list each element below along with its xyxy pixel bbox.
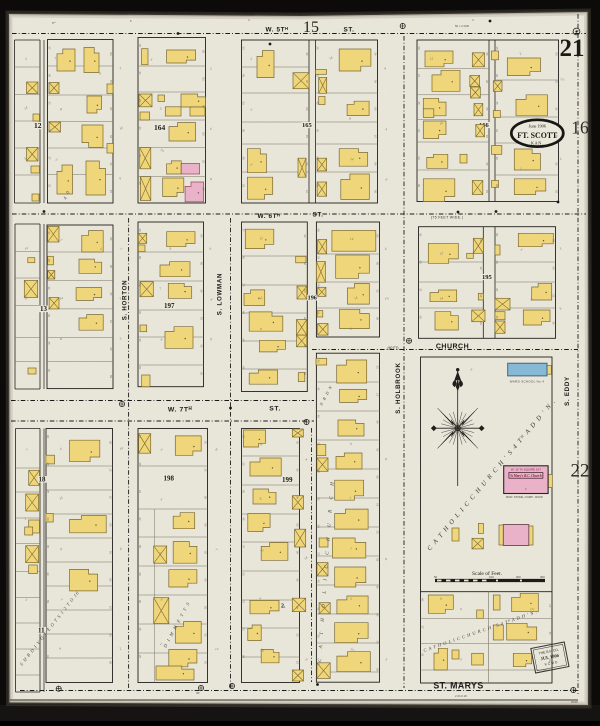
- svg-text:37: 37: [317, 552, 321, 556]
- svg-text:40: 40: [375, 317, 379, 321]
- svg-text:40: 40: [419, 233, 423, 237]
- svg-text:40: 40: [242, 311, 246, 315]
- svg-text:37: 37: [203, 468, 207, 472]
- svg-text:45: 45: [303, 317, 307, 321]
- svg-text:45: 45: [138, 627, 142, 631]
- svg-text:42: 42: [548, 631, 552, 635]
- svg-text:50: 50: [201, 132, 205, 136]
- svg-text:25: 25: [47, 369, 51, 373]
- svg-text:60: 60: [138, 600, 142, 604]
- svg-text:45: 45: [138, 99, 142, 103]
- svg-text:2046: 2046: [571, 700, 578, 704]
- svg-text:W. 16 Th SQUIRE 157: W. 16 Th SQUIRE 157: [511, 468, 542, 471]
- svg-text:40: 40: [138, 181, 142, 185]
- svg-text:50: 50: [551, 239, 555, 243]
- svg-text:60: 60: [242, 129, 246, 133]
- svg-text:14: 14: [215, 647, 219, 651]
- svg-text:25: 25: [375, 640, 379, 644]
- svg-text:60: 60: [419, 261, 423, 265]
- svg-text:40: 40: [242, 156, 246, 160]
- svg-text:50: 50: [305, 107, 309, 111]
- svg-text:40: 40: [138, 228, 142, 232]
- svg-text:40: 40: [317, 415, 321, 419]
- svg-text:37: 37: [108, 496, 112, 500]
- svg-text:ST.: ST.: [343, 26, 354, 33]
- svg-text:33: 33: [419, 288, 423, 292]
- svg-text:37: 37: [548, 604, 552, 608]
- svg-text:25: 25: [109, 135, 113, 139]
- svg-text:60: 60: [495, 233, 499, 237]
- svg-text:CHURCH: CHURCH: [436, 343, 469, 350]
- svg-text:June 1906: June 1906: [529, 124, 546, 129]
- svg-text:(60 FT): (60 FT): [387, 346, 398, 350]
- svg-text:60: 60: [48, 74, 52, 78]
- svg-text:40: 40: [479, 239, 483, 243]
- svg-text:37: 37: [375, 393, 379, 397]
- svg-text:33: 33: [417, 156, 421, 160]
- svg-text:60: 60: [242, 338, 246, 342]
- svg-text:33: 33: [48, 184, 52, 188]
- svg-text:60: 60: [138, 256, 142, 260]
- svg-text:60: 60: [419, 316, 423, 320]
- svg-text:33: 33: [109, 190, 113, 194]
- svg-text:42: 42: [485, 52, 489, 56]
- svg-text:25: 25: [554, 80, 558, 84]
- svg-text:40: 40: [201, 105, 205, 109]
- svg-text:42: 42: [138, 490, 142, 494]
- svg-text:37: 37: [138, 71, 142, 75]
- svg-text:165: 165: [302, 122, 313, 129]
- svg-text:60: 60: [203, 523, 207, 527]
- svg-text:60: 60: [495, 261, 499, 265]
- svg-text:2·R.O.W.: 2·R.O.W.: [455, 694, 468, 698]
- svg-text:42: 42: [317, 387, 321, 391]
- svg-text:1½: 1½: [530, 607, 535, 611]
- svg-text:25: 25: [201, 187, 205, 191]
- svg-text:25: 25: [242, 462, 246, 466]
- svg-text:25: 25: [316, 46, 320, 50]
- svg-text:50: 50: [108, 441, 112, 445]
- svg-text:25: 25: [479, 294, 483, 298]
- svg-text:MOD: STONE, COMP - ROOF: MOD: STONE, COMP - ROOF: [506, 495, 543, 499]
- svg-text:42: 42: [305, 135, 309, 139]
- svg-text:42: 42: [485, 107, 489, 111]
- svg-text:50: 50: [109, 375, 113, 379]
- svg-text:60: 60: [242, 435, 246, 439]
- svg-text:60: 60: [375, 613, 379, 617]
- svg-text:37: 37: [417, 74, 421, 78]
- svg-text:33: 33: [199, 317, 203, 321]
- svg-text:60: 60: [199, 262, 203, 266]
- svg-text:42: 42: [551, 321, 555, 325]
- svg-text:37: 37: [109, 320, 113, 324]
- svg-text:50: 50: [434, 575, 438, 579]
- svg-text:42: 42: [317, 607, 321, 611]
- svg-text:45: 45: [295, 441, 299, 445]
- svg-text:33: 33: [203, 661, 207, 665]
- svg-text:50 × 2 FAR: 50 × 2 FAR: [455, 24, 469, 28]
- svg-text:W. 5Tᴴ: W. 5Tᴴ: [265, 26, 288, 33]
- svg-text:42: 42: [47, 286, 51, 290]
- svg-text:195: 195: [482, 274, 493, 281]
- svg-text:42: 42: [495, 129, 499, 133]
- svg-text:33: 33: [48, 129, 52, 133]
- svg-text:198: 198: [164, 475, 175, 483]
- svg-text:40: 40: [373, 162, 377, 166]
- svg-text:25: 25: [46, 490, 50, 494]
- svg-text:60: 60: [108, 578, 112, 582]
- svg-text:25: 25: [316, 184, 320, 188]
- svg-text:197: 197: [164, 302, 175, 310]
- svg-text:6ʳᵈ: 6ʳᵈ: [52, 21, 55, 25]
- svg-text:50: 50: [201, 50, 205, 54]
- svg-text:40: 40: [295, 606, 299, 610]
- svg-text:37: 37: [48, 156, 52, 160]
- svg-text:13: 13: [40, 305, 48, 313]
- svg-text:25: 25: [201, 160, 205, 164]
- svg-text:12: 12: [34, 121, 42, 130]
- svg-text:33: 33: [317, 311, 321, 315]
- svg-text:37: 37: [47, 231, 51, 235]
- svg-text:60: 60: [199, 234, 203, 238]
- svg-text:50: 50: [373, 190, 377, 194]
- svg-text:37: 37: [108, 468, 112, 472]
- svg-text:25: 25: [479, 266, 483, 270]
- svg-text:21: 21: [560, 35, 585, 62]
- svg-text:33: 33: [485, 135, 489, 139]
- svg-text:42: 42: [417, 129, 421, 133]
- svg-text:45: 45: [317, 580, 321, 584]
- svg-text:40: 40: [554, 135, 558, 139]
- svg-text:50: 50: [548, 659, 552, 663]
- svg-text:33: 33: [242, 184, 246, 188]
- svg-text:45: 45: [242, 74, 246, 78]
- svg-text:33: 33: [242, 572, 246, 576]
- svg-text:37: 37: [138, 517, 142, 521]
- svg-text:25: 25: [46, 462, 50, 466]
- svg-text:25: 25: [303, 234, 307, 238]
- svg-text:60: 60: [138, 572, 142, 576]
- svg-text:S. EDDY: S. EDDY: [564, 376, 571, 406]
- svg-text:45: 45: [46, 545, 50, 549]
- svg-text:45: 45: [199, 372, 203, 376]
- svg-text:37: 37: [421, 626, 425, 630]
- svg-text:S. LOWMAN: S. LOWMAN: [217, 273, 224, 315]
- svg-text:ST.: ST.: [312, 212, 323, 219]
- svg-text:40: 40: [295, 551, 299, 555]
- svg-text:60: 60: [108, 661, 112, 665]
- svg-text:50: 50: [305, 162, 309, 166]
- svg-text:25: 25: [138, 366, 142, 370]
- svg-text:45: 45: [554, 162, 558, 166]
- svg-text:45: 45: [495, 316, 499, 320]
- svg-text:45: 45: [305, 52, 309, 56]
- svg-text:42: 42: [485, 162, 489, 166]
- svg-text:40: 40: [375, 668, 379, 672]
- svg-text:45: 45: [242, 490, 246, 494]
- svg-text:50: 50: [479, 321, 483, 325]
- svg-text:25: 25: [138, 655, 142, 659]
- svg-text:30ʹ: 30ʹ: [196, 691, 200, 695]
- svg-text:50: 50: [109, 52, 113, 56]
- svg-text:16: 16: [571, 118, 589, 138]
- svg-text:60: 60: [375, 234, 379, 238]
- svg-text:40: 40: [109, 107, 113, 111]
- svg-text:100: 100: [489, 575, 494, 579]
- svg-text:33: 33: [317, 662, 321, 666]
- svg-text:60: 60: [46, 600, 50, 604]
- svg-text:25: 25: [495, 288, 499, 292]
- svg-text:40: 40: [375, 420, 379, 424]
- svg-text:KAN.: KAN.: [531, 140, 544, 145]
- svg-text:37: 37: [138, 435, 142, 439]
- svg-text:60: 60: [316, 156, 320, 160]
- svg-text:199: 199: [282, 476, 293, 484]
- svg-text:42: 42: [46, 655, 50, 659]
- svg-text:15: 15: [303, 19, 319, 36]
- svg-text:37: 37: [242, 228, 246, 232]
- svg-text:FT. SCOTT: FT. SCOTT: [517, 130, 557, 140]
- svg-text:ST. MARYS: ST. MARYS: [433, 681, 483, 691]
- svg-text:33: 33: [317, 256, 321, 260]
- svg-text:45: 45: [295, 578, 299, 582]
- svg-text:40: 40: [375, 558, 379, 562]
- svg-text:50: 50: [138, 545, 142, 549]
- svg-text:42: 42: [109, 292, 113, 296]
- svg-text:37: 37: [317, 442, 321, 446]
- svg-text:42: 42: [199, 344, 203, 348]
- svg-text:45: 45: [242, 366, 246, 370]
- svg-text:42: 42: [48, 101, 52, 105]
- svg-text:33: 33: [46, 627, 50, 631]
- svg-text:37: 37: [305, 190, 309, 194]
- svg-text:33: 33: [242, 46, 246, 50]
- svg-text:2.: 2.: [281, 604, 286, 610]
- svg-text:37: 37: [48, 46, 52, 50]
- svg-text:42: 42: [317, 360, 321, 364]
- svg-text:25: 25: [109, 347, 113, 351]
- svg-text:40: 40: [375, 585, 379, 589]
- svg-text:40: 40: [138, 154, 142, 158]
- svg-text:60: 60: [303, 289, 307, 293]
- svg-text:8: 8: [60, 337, 62, 341]
- svg-text:W. 7Tᴴ: W. 7Tᴴ: [168, 407, 192, 414]
- svg-text:25: 25: [375, 365, 379, 369]
- svg-text:33: 33: [242, 627, 246, 631]
- svg-text:50: 50: [108, 523, 112, 527]
- svg-text:25: 25: [375, 530, 379, 534]
- svg-text:WARD SCHOOL No 4: WARD SCHOOL No 4: [510, 380, 544, 384]
- svg-text:50: 50: [203, 606, 207, 610]
- svg-text:14: 14: [350, 237, 354, 241]
- svg-text:42: 42: [108, 551, 112, 555]
- svg-text:45: 45: [373, 80, 377, 84]
- svg-text:50: 50: [554, 52, 558, 56]
- svg-text:45: 45: [316, 129, 320, 133]
- svg-text:25: 25: [551, 294, 555, 298]
- svg-text:45: 45: [495, 101, 499, 105]
- svg-text:45: 45: [295, 468, 299, 472]
- svg-text:18: 18: [39, 476, 47, 484]
- svg-text:40: 40: [109, 237, 113, 241]
- svg-text:60: 60: [551, 266, 555, 270]
- svg-text:50: 50: [295, 523, 299, 527]
- svg-text:40: 40: [47, 314, 51, 318]
- svg-text:196: 196: [308, 295, 317, 302]
- svg-text:45: 45: [495, 46, 499, 50]
- svg-text:St Mary’s R.C. Church: St Mary’s R.C. Church: [510, 474, 542, 478]
- svg-text:42: 42: [421, 653, 425, 657]
- svg-text:33: 33: [109, 80, 113, 84]
- svg-text:37: 37: [108, 606, 112, 610]
- svg-text:25: 25: [375, 289, 379, 293]
- svg-text:40: 40: [46, 435, 50, 439]
- svg-text:42: 42: [203, 578, 207, 582]
- svg-text:60: 60: [46, 517, 50, 521]
- svg-text:60: 60: [373, 107, 377, 111]
- svg-text:S. HOLBROOK: S. HOLBROOK: [395, 362, 402, 413]
- svg-text:45: 45: [138, 44, 142, 48]
- svg-text:45: 45: [242, 517, 246, 521]
- svg-text:25: 25: [242, 283, 246, 287]
- svg-text:50: 50: [138, 283, 142, 287]
- svg-text:45: 45: [199, 289, 203, 293]
- svg-text:50: 50: [317, 525, 321, 529]
- svg-text:33: 33: [242, 101, 246, 105]
- svg-text:37: 37: [295, 661, 299, 665]
- svg-text:25: 25: [203, 633, 207, 637]
- svg-text:45: 45: [242, 256, 246, 260]
- svg-text:60: 60: [495, 184, 499, 188]
- svg-text:42: 42: [485, 190, 489, 194]
- svg-text:33: 33: [317, 497, 321, 501]
- svg-text:45: 45: [138, 338, 142, 342]
- svg-text:300: 300: [540, 575, 545, 579]
- svg-text:45: 45: [373, 52, 377, 56]
- svg-text:60: 60: [242, 655, 246, 659]
- svg-text:25: 25: [47, 259, 51, 263]
- svg-text:(75 FEET WIDE.): (75 FEET WIDE.): [431, 216, 463, 220]
- svg-text:40: 40: [109, 265, 113, 269]
- svg-text:45: 45: [316, 101, 320, 105]
- svg-text:40: 40: [203, 496, 207, 500]
- svg-text:37: 37: [242, 600, 246, 604]
- svg-text:37: 37: [373, 135, 377, 139]
- svg-text:164: 164: [154, 123, 166, 132]
- svg-text:37: 37: [109, 162, 113, 166]
- svg-text:45: 45: [305, 80, 309, 84]
- svg-text:40: 40: [303, 344, 307, 348]
- svg-text:40: 40: [295, 496, 299, 500]
- svg-text:S. HORTON: S. HORTON: [121, 280, 128, 321]
- svg-text:45: 45: [138, 311, 142, 315]
- svg-text:200: 200: [516, 575, 521, 579]
- svg-text:50: 50: [108, 633, 112, 637]
- svg-text:60: 60: [417, 46, 421, 50]
- svg-text:22: 22: [571, 461, 590, 482]
- svg-text:25: 25: [138, 462, 142, 466]
- svg-text:42: 42: [46, 572, 50, 576]
- svg-text:40: 40: [317, 470, 321, 474]
- svg-text:40: 40: [375, 475, 379, 479]
- svg-text:50: 50: [317, 635, 321, 639]
- svg-text:60: 60: [421, 598, 425, 602]
- svg-text:ST.: ST.: [269, 406, 281, 413]
- svg-text:42: 42: [375, 503, 379, 507]
- svg-text:25: 25: [303, 262, 307, 266]
- svg-text:25: 25: [203, 551, 207, 555]
- svg-text:Scale of Feet.: Scale of Feet.: [472, 570, 503, 577]
- svg-text:25: 25: [554, 190, 558, 194]
- svg-text:45: 45: [47, 341, 51, 345]
- svg-text:45: 45: [375, 448, 379, 452]
- svg-text:45: 45: [554, 107, 558, 111]
- svg-text:50: 50: [303, 372, 307, 376]
- svg-text:40: 40: [495, 74, 499, 78]
- svg-text:60: 60: [375, 262, 379, 266]
- svg-text:25: 25: [417, 101, 421, 105]
- svg-text:40: 40: [317, 228, 321, 232]
- svg-text:25: 25: [295, 633, 299, 637]
- svg-text:42: 42: [138, 126, 142, 130]
- svg-text:60: 60: [417, 184, 421, 188]
- svg-text:25: 25: [316, 74, 320, 78]
- svg-text:60: 60: [317, 283, 321, 287]
- svg-text:25: 25: [485, 80, 489, 84]
- svg-text:W. 6Tᴴ: W. 6Tᴴ: [257, 213, 280, 220]
- svg-text:33: 33: [203, 441, 207, 445]
- svg-text:40: 40: [495, 156, 499, 160]
- svg-text:50: 50: [201, 77, 205, 81]
- svg-text:37: 37: [242, 545, 246, 549]
